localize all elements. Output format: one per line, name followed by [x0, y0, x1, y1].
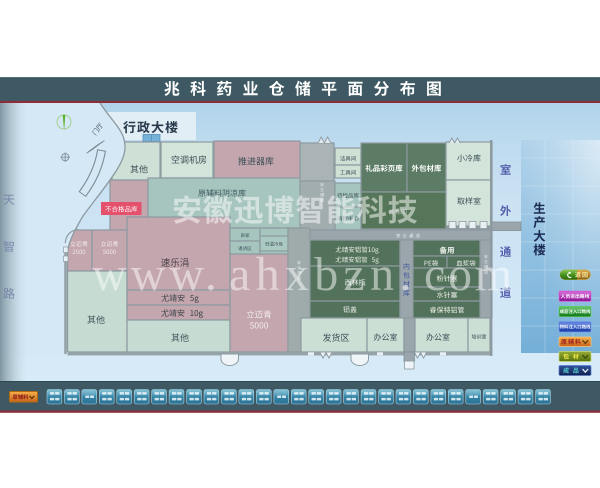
- svg-text:www.: www.: [92, 248, 221, 301]
- svg-text:com: com: [424, 248, 515, 301]
- svg-text:ahxbzn.: ahxbzn.: [229, 248, 417, 301]
